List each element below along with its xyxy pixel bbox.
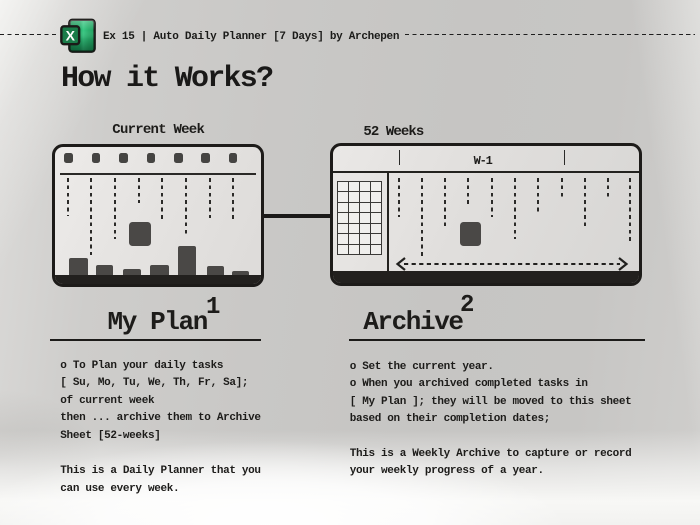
svg-text:X: X bbox=[65, 27, 75, 43]
